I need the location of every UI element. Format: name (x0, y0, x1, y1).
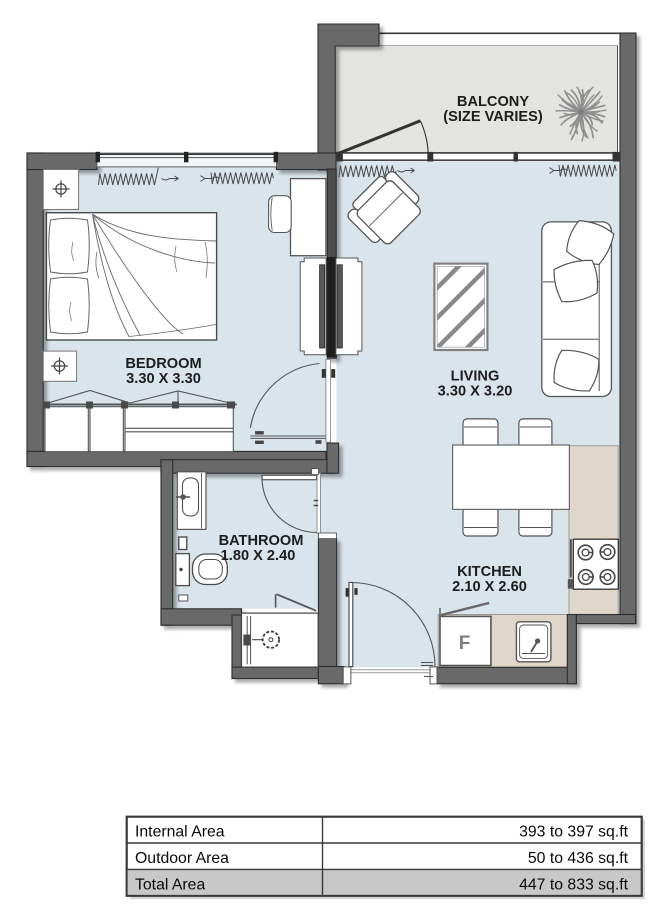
svg-text:KITCHEN: KITCHEN (457, 564, 522, 580)
svg-text:3.30 X 3.30: 3.30 X 3.30 (126, 371, 201, 387)
svg-text:Total Area: Total Area (135, 877, 205, 894)
svg-text:Outdoor Area: Outdoor Area (135, 850, 229, 867)
svg-text:447 to 833 sq.ft: 447 to 833 sq.ft (519, 877, 629, 894)
svg-text:BATHROOM: BATHROOM (219, 533, 304, 549)
svg-text:2.10 X 2.60: 2.10 X 2.60 (452, 579, 527, 595)
svg-text:(SIZE VARIES): (SIZE VARIES) (443, 109, 543, 125)
svg-text:LIVING: LIVING (451, 369, 500, 385)
svg-text:50 to 436 sq.ft: 50 to 436 sq.ft (528, 850, 629, 867)
svg-text:Internal Area: Internal Area (135, 824, 225, 841)
svg-text:393 to 397 sq.ft: 393 to 397 sq.ft (519, 824, 629, 841)
svg-text:BALCONY: BALCONY (457, 94, 529, 110)
svg-text:1.80 X 2.40: 1.80 X 2.40 (221, 548, 296, 564)
svg-text:BEDROOM: BEDROOM (125, 356, 201, 372)
svg-text:3.30 X 3.20: 3.30 X 3.20 (438, 384, 513, 400)
svg-text:F: F (459, 633, 471, 654)
